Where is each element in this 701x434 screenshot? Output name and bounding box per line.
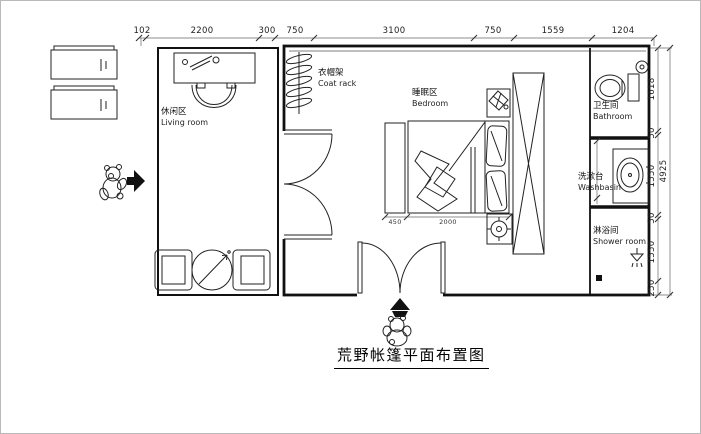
bed <box>385 121 509 213</box>
dim-right-total: 4925 <box>659 160 669 183</box>
left-bear-figure-icon <box>98 165 128 202</box>
dim-right-3: 50 <box>647 212 657 223</box>
lounge-chairs <box>51 46 117 119</box>
wardrobe <box>513 73 544 254</box>
dim-top-4: 3100 <box>383 26 406 36</box>
dim-top-1: 2200 <box>191 26 214 36</box>
label-washbasin-en: Washbasin <box>578 183 621 193</box>
label-bathroom-en: Bathroom <box>593 112 632 122</box>
bottom-bear-figure-icon <box>383 316 411 347</box>
label-bedroom: 睡眠区 Bedroom <box>412 88 448 109</box>
label-shower-room-zh: 淋浴间 <box>593 226 646 237</box>
dim-top-0: 102 <box>133 26 150 36</box>
toilet <box>595 74 639 101</box>
coat-rack <box>286 52 313 114</box>
label-bedroom-en: Bedroom <box>412 99 448 109</box>
nightstand-top <box>487 89 510 117</box>
label-coat-rack-en: Coat rack <box>318 79 356 89</box>
dim-right-2: 1550 <box>647 165 657 188</box>
entry-double-door <box>358 242 445 293</box>
label-bathroom: 卫生间 Bathroom <box>593 101 632 122</box>
label-living-room-en: Living room <box>161 118 208 128</box>
dim-right-0: 1618 <box>647 78 657 101</box>
dim-top-3: 750 <box>286 26 303 36</box>
dim-right-4: 1550 <box>647 241 657 264</box>
label-bedroom-zh: 睡眠区 <box>412 88 448 99</box>
dim-bed-0: 450 <box>388 218 401 226</box>
dim-bed-1: 2000 <box>439 218 457 226</box>
dim-top-7: 1204 <box>612 26 635 36</box>
dim-top-5: 750 <box>484 26 501 36</box>
dim-right-5: 250 <box>647 279 657 296</box>
shower-head-icon <box>631 248 643 267</box>
floor-plan-drawing <box>1 1 701 434</box>
label-shower-room-en: Shower room <box>593 237 646 247</box>
page-title: 荒野帐篷平面布置图 <box>334 344 489 369</box>
armchair-left <box>155 250 192 290</box>
desk <box>174 53 255 88</box>
label-washbasin-zh: 洗漱台 <box>578 172 621 183</box>
label-shower-room: 淋浴间 Shower room <box>593 226 646 247</box>
armchair-right <box>233 250 270 290</box>
label-bathroom-zh: 卫生间 <box>593 101 632 112</box>
floor-drain-icon <box>596 275 602 281</box>
floor-plan-canvas: 102 2200 300 750 3100 750 1559 1204 1618… <box>0 0 701 434</box>
walls <box>158 46 649 300</box>
label-living-room: 休闲区 Living room <box>161 107 208 128</box>
label-washbasin: 洗漱台 Washbasin <box>578 172 621 193</box>
ceiling-light-icon <box>636 61 648 73</box>
left-entrance-arrow-icon <box>127 170 145 192</box>
label-coat-rack-zh: 衣帽架 <box>318 68 356 79</box>
dim-top-2: 300 <box>258 26 275 36</box>
label-living-room-zh: 休闲区 <box>161 107 208 118</box>
dim-right-1: 50 <box>647 127 657 138</box>
label-coat-rack: 衣帽架 Coat rack <box>318 68 356 89</box>
interior-double-door <box>284 130 332 239</box>
dim-top-6: 1559 <box>542 26 565 36</box>
bottom-entrance-arrow-icon <box>390 298 410 317</box>
round-table <box>192 250 232 290</box>
